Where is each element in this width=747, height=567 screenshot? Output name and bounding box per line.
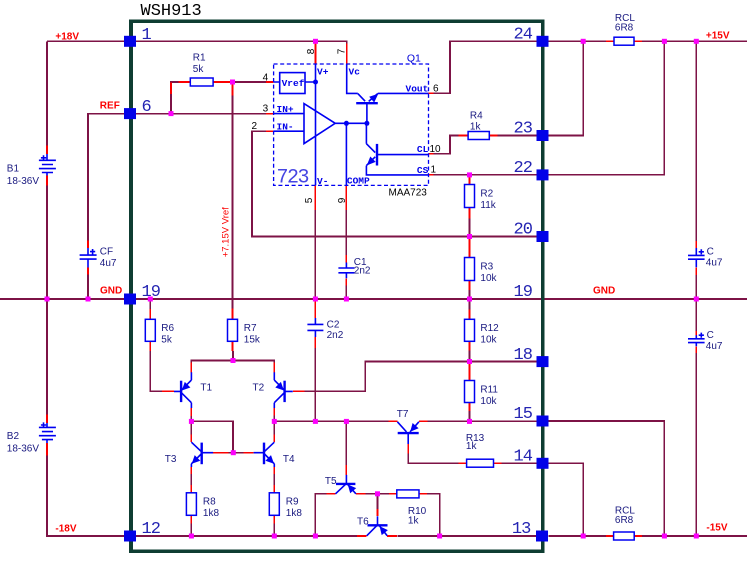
- svg-text:1k8: 1k8: [286, 508, 303, 519]
- svg-text:4: 4: [263, 73, 269, 84]
- svg-text:7: 7: [337, 48, 348, 54]
- svg-text:6: 6: [142, 98, 152, 117]
- svg-text:18-36V: 18-36V: [7, 443, 40, 454]
- svg-text:18-36V: 18-36V: [7, 176, 40, 187]
- svg-text:15k: 15k: [244, 335, 261, 346]
- svg-text:23: 23: [514, 120, 533, 139]
- svg-text:REF: REF: [100, 101, 120, 112]
- svg-text:+18V: +18V: [55, 32, 79, 43]
- svg-text:6: 6: [433, 83, 439, 94]
- svg-text:T2: T2: [253, 383, 265, 394]
- svg-text:4u7: 4u7: [706, 341, 723, 352]
- svg-text:T7: T7: [397, 409, 409, 420]
- svg-text:COMP: COMP: [347, 175, 370, 186]
- svg-text:1k: 1k: [470, 122, 482, 133]
- svg-text:T5: T5: [325, 476, 337, 487]
- svg-text:10: 10: [430, 144, 442, 155]
- svg-text:T1: T1: [200, 383, 212, 394]
- svg-text:Vc: Vc: [349, 66, 361, 77]
- svg-text:1k: 1k: [466, 441, 478, 452]
- svg-text:R1: R1: [193, 53, 206, 64]
- svg-text:5k: 5k: [161, 335, 173, 346]
- svg-text:R9: R9: [286, 497, 299, 508]
- svg-text:18: 18: [514, 346, 533, 365]
- svg-text:9: 9: [337, 197, 348, 203]
- svg-text:10k: 10k: [480, 273, 497, 284]
- svg-text:+15V: +15V: [706, 30, 730, 41]
- svg-text:11k: 11k: [480, 200, 496, 211]
- svg-text:Vref: Vref: [282, 78, 305, 89]
- svg-text:19: 19: [514, 283, 533, 302]
- svg-text:20: 20: [514, 221, 533, 240]
- svg-text:10k: 10k: [480, 335, 497, 346]
- svg-text:-15V: -15V: [706, 523, 727, 534]
- svg-text:R11: R11: [480, 384, 498, 395]
- svg-text:3: 3: [263, 104, 269, 115]
- svg-text:6R8: 6R8: [615, 22, 634, 33]
- svg-text:4u7: 4u7: [706, 258, 723, 269]
- svg-text:IN-: IN-: [277, 121, 294, 132]
- svg-text:R6: R6: [161, 323, 174, 334]
- svg-text:12: 12: [142, 520, 160, 539]
- svg-text:5k: 5k: [193, 64, 205, 75]
- svg-text:R4: R4: [470, 110, 483, 121]
- svg-text:Vout: Vout: [406, 84, 429, 95]
- svg-text:+7.15V Vref: +7.15V Vref: [221, 207, 232, 257]
- svg-text:C: C: [707, 330, 714, 341]
- svg-text:Q1: Q1: [407, 53, 421, 65]
- svg-text:T4: T4: [283, 454, 295, 465]
- svg-text:8: 8: [306, 48, 317, 54]
- svg-text:MAA723: MAA723: [389, 188, 428, 199]
- svg-text:6R8: 6R8: [615, 515, 634, 526]
- svg-text:R3: R3: [480, 261, 493, 272]
- svg-text:CS: CS: [417, 165, 429, 176]
- svg-text:R12: R12: [480, 323, 499, 334]
- svg-text:15: 15: [514, 405, 533, 424]
- svg-text:2n2: 2n2: [354, 265, 371, 276]
- svg-text:T3: T3: [165, 454, 177, 465]
- svg-text:14: 14: [514, 448, 533, 467]
- svg-text:CL: CL: [417, 144, 429, 155]
- svg-text:R7: R7: [244, 323, 257, 334]
- svg-text:13: 13: [512, 520, 531, 539]
- svg-text:24: 24: [514, 26, 533, 45]
- svg-text:22: 22: [514, 159, 532, 178]
- svg-text:GND: GND: [100, 286, 122, 297]
- svg-text:5: 5: [304, 197, 315, 203]
- svg-text:T6: T6: [357, 517, 369, 528]
- svg-text:CF: CF: [100, 247, 113, 258]
- svg-text:V+: V+: [317, 66, 329, 77]
- svg-text:R8: R8: [203, 497, 216, 508]
- svg-text:C: C: [707, 247, 714, 258]
- svg-text:B2: B2: [7, 431, 20, 442]
- svg-text:2: 2: [252, 121, 258, 132]
- svg-text:B1: B1: [7, 164, 20, 175]
- svg-text:2n2: 2n2: [327, 330, 344, 341]
- svg-text:R2: R2: [480, 188, 493, 199]
- svg-text:IN+: IN+: [277, 104, 294, 115]
- svg-text:WSH913: WSH913: [141, 2, 202, 21]
- svg-text:1: 1: [142, 26, 152, 45]
- svg-text:-18V: -18V: [55, 524, 76, 535]
- svg-text:V-: V-: [317, 176, 328, 187]
- svg-text:10k: 10k: [480, 396, 497, 407]
- svg-text:C2: C2: [327, 320, 340, 331]
- svg-text:723: 723: [277, 167, 309, 190]
- svg-text:GND: GND: [593, 286, 615, 297]
- svg-text:1: 1: [431, 165, 437, 176]
- svg-text:4u7: 4u7: [100, 258, 117, 269]
- svg-text:1k: 1k: [408, 516, 420, 527]
- svg-text:1k8: 1k8: [203, 508, 220, 519]
